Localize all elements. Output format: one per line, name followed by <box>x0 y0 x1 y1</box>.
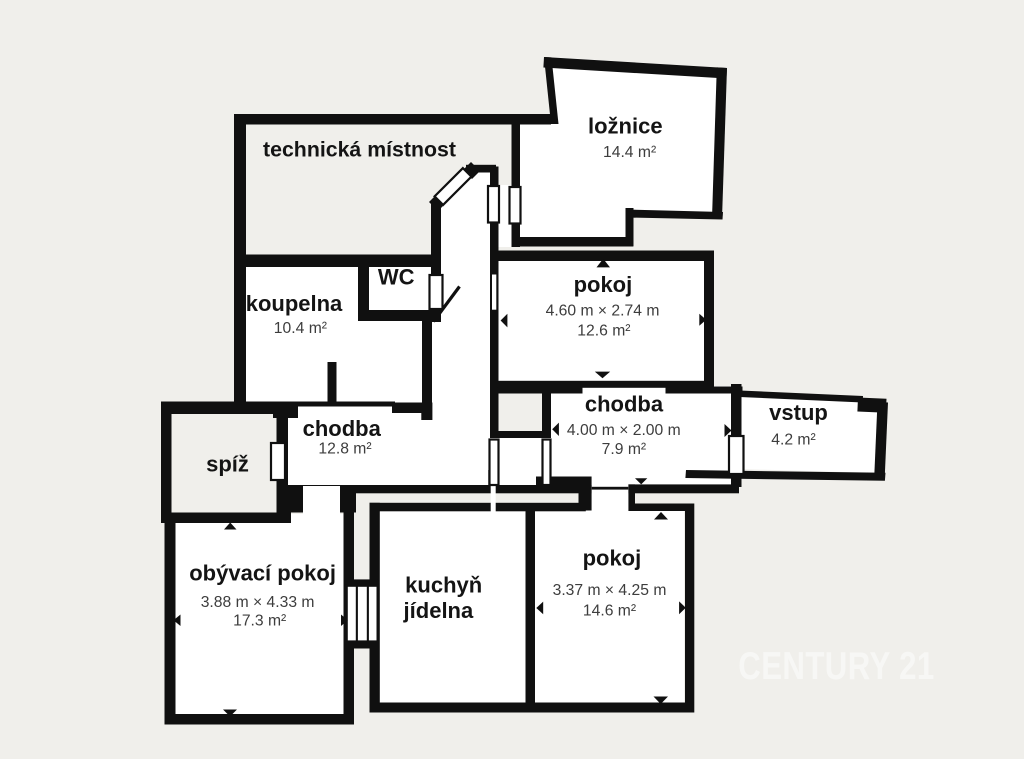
svg-text:CENTURY 21: CENTURY 21 <box>738 645 934 688</box>
svg-text:pokoj: pokoj <box>583 546 642 571</box>
svg-text:4.2 m²: 4.2 m² <box>771 432 815 449</box>
svg-text:chodba: chodba <box>303 416 382 441</box>
svg-text:obývací pokoj: obývací pokoj <box>189 561 336 586</box>
svg-text:koupelna: koupelna <box>246 291 343 316</box>
svg-text:14.6 m²: 14.6 m² <box>583 603 636 620</box>
svg-text:10.4 m²: 10.4 m² <box>274 320 327 337</box>
svg-text:17.3 m²: 17.3 m² <box>233 612 286 629</box>
svg-text:12.6 m²: 12.6 m² <box>577 322 630 339</box>
svg-text:3.88 m × 4.33 m: 3.88 m × 4.33 m <box>201 594 315 611</box>
svg-text:7.9 m²: 7.9 m² <box>602 441 646 458</box>
svg-text:3.37 m × 4.25 m: 3.37 m × 4.25 m <box>553 582 667 599</box>
svg-text:spíž: spíž <box>206 452 249 477</box>
svg-text:chodba: chodba <box>585 392 664 417</box>
svg-text:pokoj: pokoj <box>574 272 633 297</box>
svg-text:vstup: vstup <box>769 400 828 425</box>
svg-text:4.00 m × 2.00 m: 4.00 m × 2.00 m <box>567 422 681 439</box>
svg-text:4.60 m × 2.74 m: 4.60 m × 2.74 m <box>546 303 660 320</box>
svg-text:kuchyň: kuchyň <box>405 573 482 598</box>
svg-text:WC: WC <box>378 265 415 290</box>
svg-text:14.4 m²: 14.4 m² <box>603 144 656 161</box>
svg-text:ložnice: ložnice <box>588 114 663 139</box>
svg-text:12.8 m²: 12.8 m² <box>318 441 371 458</box>
svg-text:jídelna: jídelna <box>403 598 474 623</box>
svg-text:technická místnost: technická místnost <box>263 138 456 162</box>
